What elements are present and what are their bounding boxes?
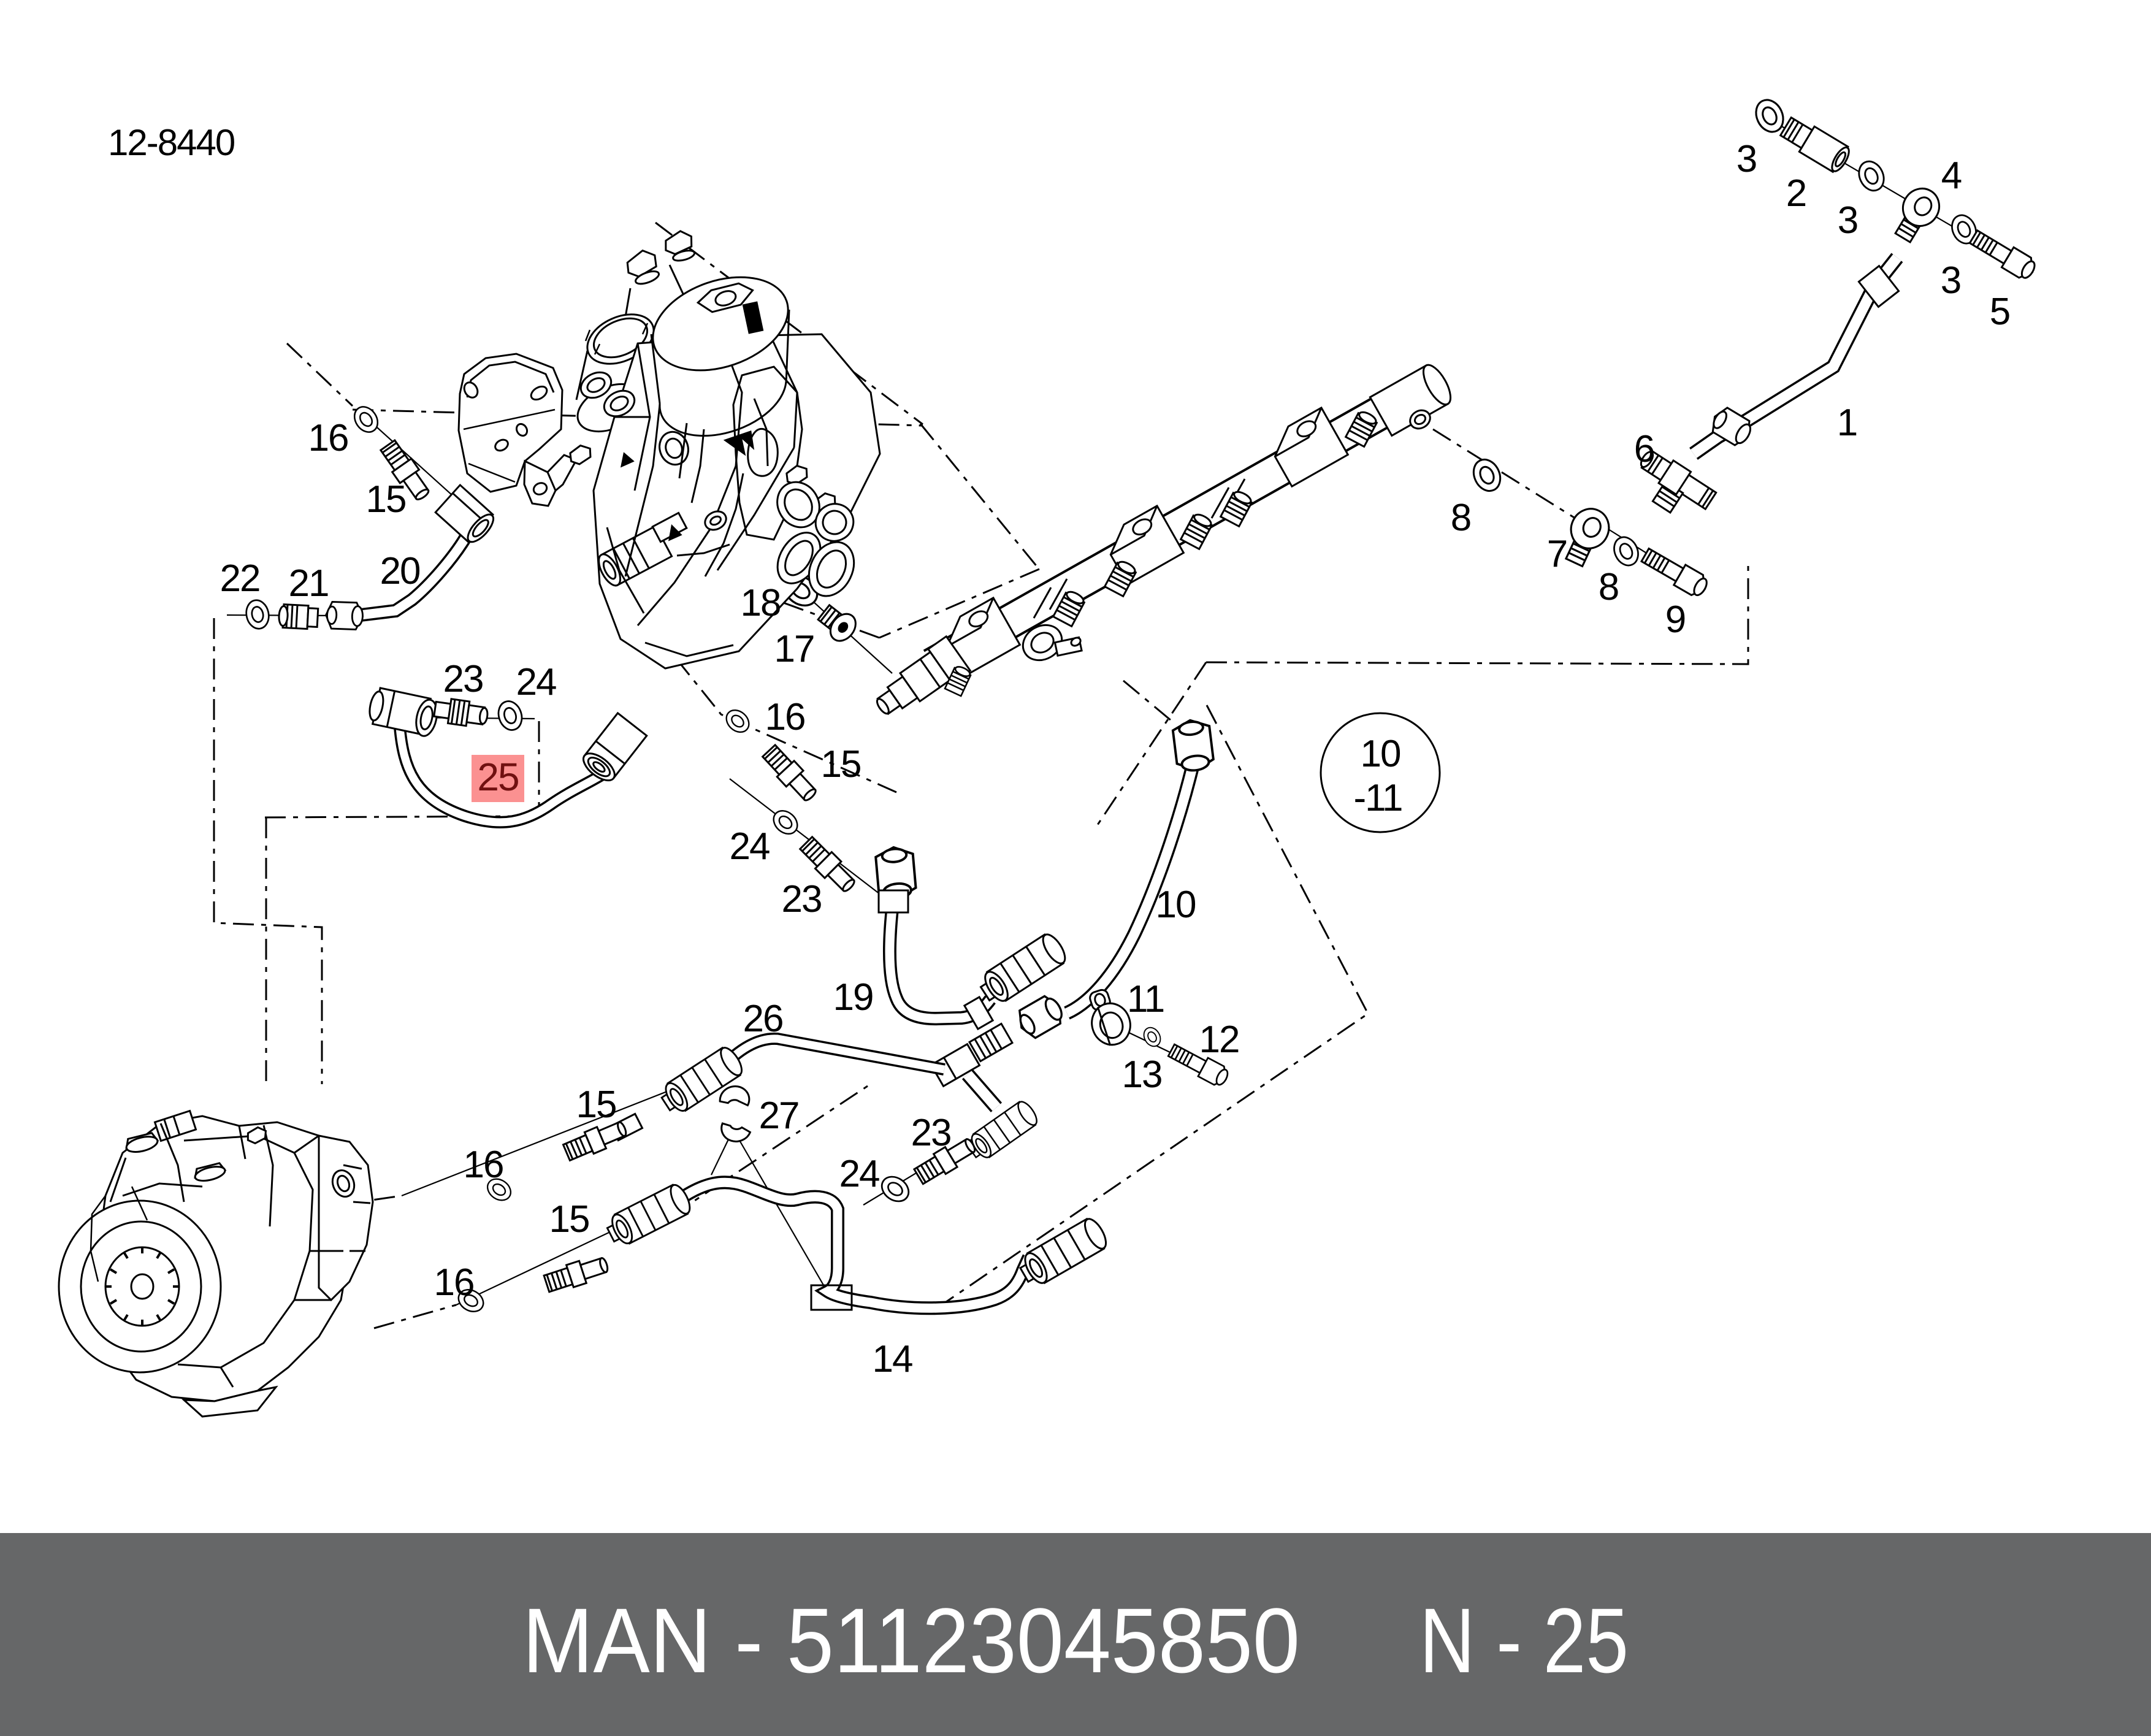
svg-text:3: 3 xyxy=(1838,199,1857,242)
svg-text:15: 15 xyxy=(366,478,406,521)
svg-text:10: 10 xyxy=(1156,884,1196,926)
svg-text:8: 8 xyxy=(1451,497,1470,539)
svg-text:1: 1 xyxy=(1837,402,1857,444)
svg-text:5: 5 xyxy=(1990,291,2009,333)
svg-text:16: 16 xyxy=(464,1144,503,1186)
svg-text:16: 16 xyxy=(308,417,348,459)
svg-text:19: 19 xyxy=(833,976,873,1019)
svg-text:15: 15 xyxy=(576,1084,616,1126)
svg-text:8: 8 xyxy=(1599,566,1618,608)
svg-text:4: 4 xyxy=(1941,155,1962,197)
svg-text:MAN - 51123045850: MAN - 51123045850 xyxy=(522,1589,1300,1692)
svg-text:16: 16 xyxy=(434,1261,474,1304)
svg-text:26: 26 xyxy=(743,998,783,1040)
svg-text:23: 23 xyxy=(443,658,483,700)
svg-text:-11: -11 xyxy=(1353,777,1402,819)
svg-text:23: 23 xyxy=(911,1112,951,1154)
svg-text:23: 23 xyxy=(782,878,822,920)
svg-text:12-8440: 12-8440 xyxy=(108,122,235,163)
svg-text:21: 21 xyxy=(289,562,329,605)
svg-text:27: 27 xyxy=(759,1095,799,1137)
svg-text:N - 25: N - 25 xyxy=(1419,1589,1629,1692)
svg-text:25: 25 xyxy=(477,755,518,799)
svg-text:12: 12 xyxy=(1199,1019,1239,1061)
svg-text:24: 24 xyxy=(730,825,770,868)
svg-text:16: 16 xyxy=(765,696,805,738)
svg-text:15: 15 xyxy=(821,743,861,786)
svg-text:10: 10 xyxy=(1361,733,1400,775)
svg-text:7: 7 xyxy=(1547,533,1567,575)
svg-text:20: 20 xyxy=(380,550,420,592)
svg-text:18: 18 xyxy=(741,582,781,624)
svg-text:13: 13 xyxy=(1122,1053,1162,1096)
svg-text:3: 3 xyxy=(1736,138,1756,180)
svg-text:6: 6 xyxy=(1634,428,1654,470)
svg-text:15: 15 xyxy=(549,1198,589,1241)
svg-text:24: 24 xyxy=(516,661,556,703)
svg-text:24: 24 xyxy=(839,1153,879,1195)
svg-text:9: 9 xyxy=(1665,598,1685,641)
svg-text:2: 2 xyxy=(1786,172,1806,215)
svg-text:17: 17 xyxy=(774,628,814,670)
svg-text:3: 3 xyxy=(1941,259,1960,302)
svg-text:14: 14 xyxy=(873,1338,912,1380)
svg-text:11: 11 xyxy=(1127,978,1164,1020)
svg-text:22: 22 xyxy=(220,557,260,600)
